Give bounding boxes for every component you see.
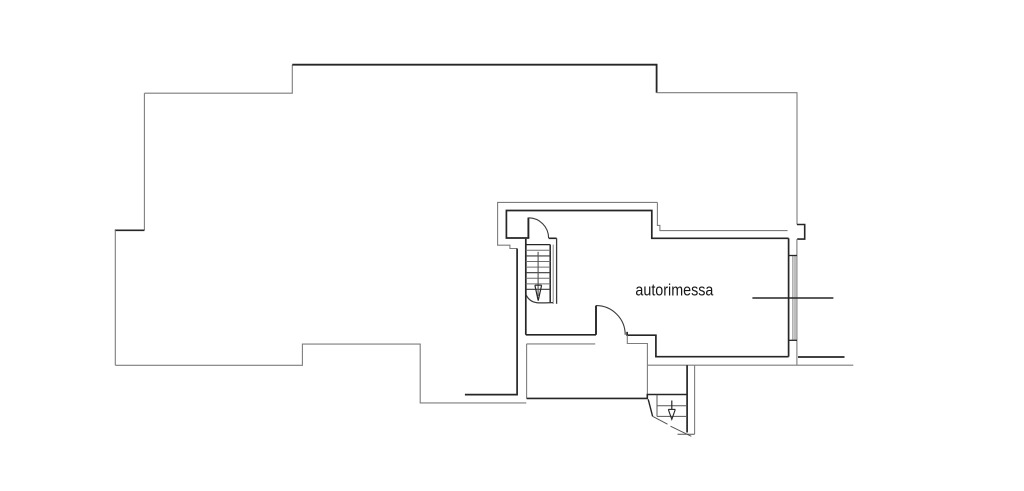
svg-text:autorimessa: autorimessa: [635, 281, 713, 300]
